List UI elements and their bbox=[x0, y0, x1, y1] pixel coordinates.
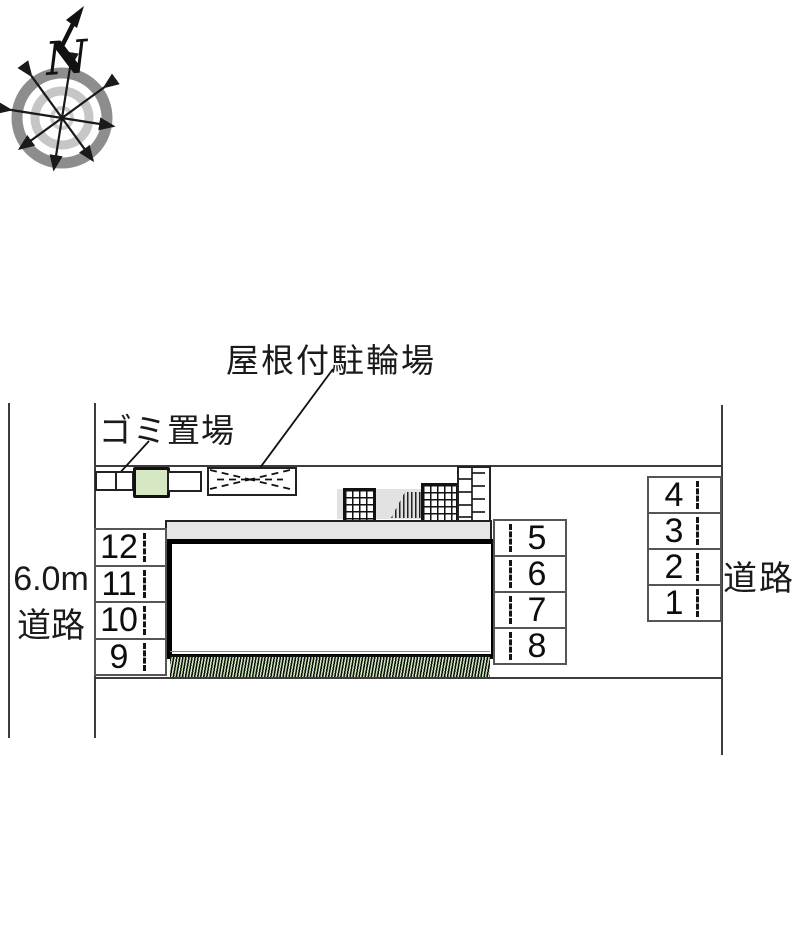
stall-number: 4 bbox=[651, 478, 697, 512]
stall-dashed-divider bbox=[143, 570, 146, 599]
parking-stall-8: 8 bbox=[495, 629, 565, 663]
stall-dashed-divider bbox=[143, 606, 146, 635]
stall-dashed-divider bbox=[509, 524, 512, 552]
stall-number: 3 bbox=[651, 514, 697, 548]
stall-number: 5 bbox=[513, 521, 561, 555]
porch-hatch-large bbox=[421, 483, 458, 522]
parking-stall-4: 4 bbox=[649, 478, 720, 514]
bicycle-parking-label: 屋根付駐輪場 bbox=[226, 334, 436, 382]
north-boundary-line bbox=[94, 465, 723, 467]
bicycle-parking-box bbox=[207, 467, 297, 496]
parking-stall-10: 10 bbox=[96, 603, 165, 640]
west-road-width-text: 6.0m bbox=[8, 556, 94, 603]
stall-dashed-divider bbox=[509, 596, 512, 624]
west-road-text: 道路 bbox=[8, 603, 94, 650]
stall-number: 9 bbox=[96, 640, 142, 674]
compass-icon: N bbox=[0, 0, 150, 185]
stall-number: 6 bbox=[513, 557, 561, 591]
stall-number: 8 bbox=[513, 629, 561, 663]
utility-box bbox=[167, 471, 202, 492]
parking-stall-2: 2 bbox=[649, 550, 720, 586]
garbage-box-divider bbox=[115, 473, 117, 489]
parking-stall-5: 5 bbox=[495, 521, 565, 557]
stall-dashed-divider bbox=[509, 632, 512, 660]
garbage-area-label: ゴミ置場 bbox=[99, 404, 235, 452]
porch-hatch-small bbox=[343, 488, 376, 522]
hedge-top-line bbox=[170, 651, 490, 652]
parking-stall-11: 11 bbox=[96, 567, 165, 604]
stall-number: 1 bbox=[651, 586, 697, 620]
parking-column-center: 5 6 7 8 bbox=[493, 519, 567, 665]
parking-stall-12: 12 bbox=[96, 530, 165, 567]
stall-dashed-divider bbox=[696, 481, 699, 509]
stall-dashed-divider bbox=[143, 533, 146, 562]
parking-stall-1: 1 bbox=[649, 586, 720, 620]
bicycle-parking-leader-line bbox=[251, 369, 333, 480]
south-boundary-line bbox=[94, 677, 723, 679]
hedge-strip bbox=[170, 655, 490, 677]
west-road-label: 6.0m 道路 bbox=[8, 556, 94, 650]
stall-number: 11 bbox=[96, 567, 142, 601]
building-wall bbox=[167, 539, 496, 659]
stall-number: 2 bbox=[651, 550, 697, 584]
parking-column-east: 4 3 2 1 bbox=[647, 476, 722, 622]
east-road-label: 道路 bbox=[723, 551, 795, 600]
parking-stall-6: 6 bbox=[495, 557, 565, 593]
north-arrow-head bbox=[66, 6, 84, 28]
stall-number: 7 bbox=[513, 593, 561, 627]
north-label: N bbox=[42, 29, 92, 86]
stall-number: 12 bbox=[96, 530, 142, 564]
parking-stall-3: 3 bbox=[649, 514, 720, 550]
stair-brick-pattern bbox=[459, 468, 485, 521]
garbage-area-box bbox=[95, 471, 134, 491]
stall-dashed-divider bbox=[143, 643, 146, 672]
parking-column-west: 12 11 10 9 bbox=[94, 528, 167, 676]
stall-dashed-divider bbox=[696, 517, 699, 545]
planter-box bbox=[133, 467, 170, 498]
stall-dashed-divider bbox=[696, 553, 699, 581]
stall-dashed-divider bbox=[696, 589, 699, 617]
stall-dashed-divider bbox=[509, 560, 512, 588]
stall-number: 10 bbox=[96, 603, 142, 637]
site-plan: N 屋根付駐輪場 ゴミ置場 6.0m 道路 道路 bbox=[0, 0, 800, 941]
stair-block bbox=[457, 466, 491, 527]
parking-stall-7: 7 bbox=[495, 593, 565, 629]
bicycle-parking-roof-hatch bbox=[209, 469, 291, 490]
parking-stall-9: 9 bbox=[96, 640, 165, 675]
